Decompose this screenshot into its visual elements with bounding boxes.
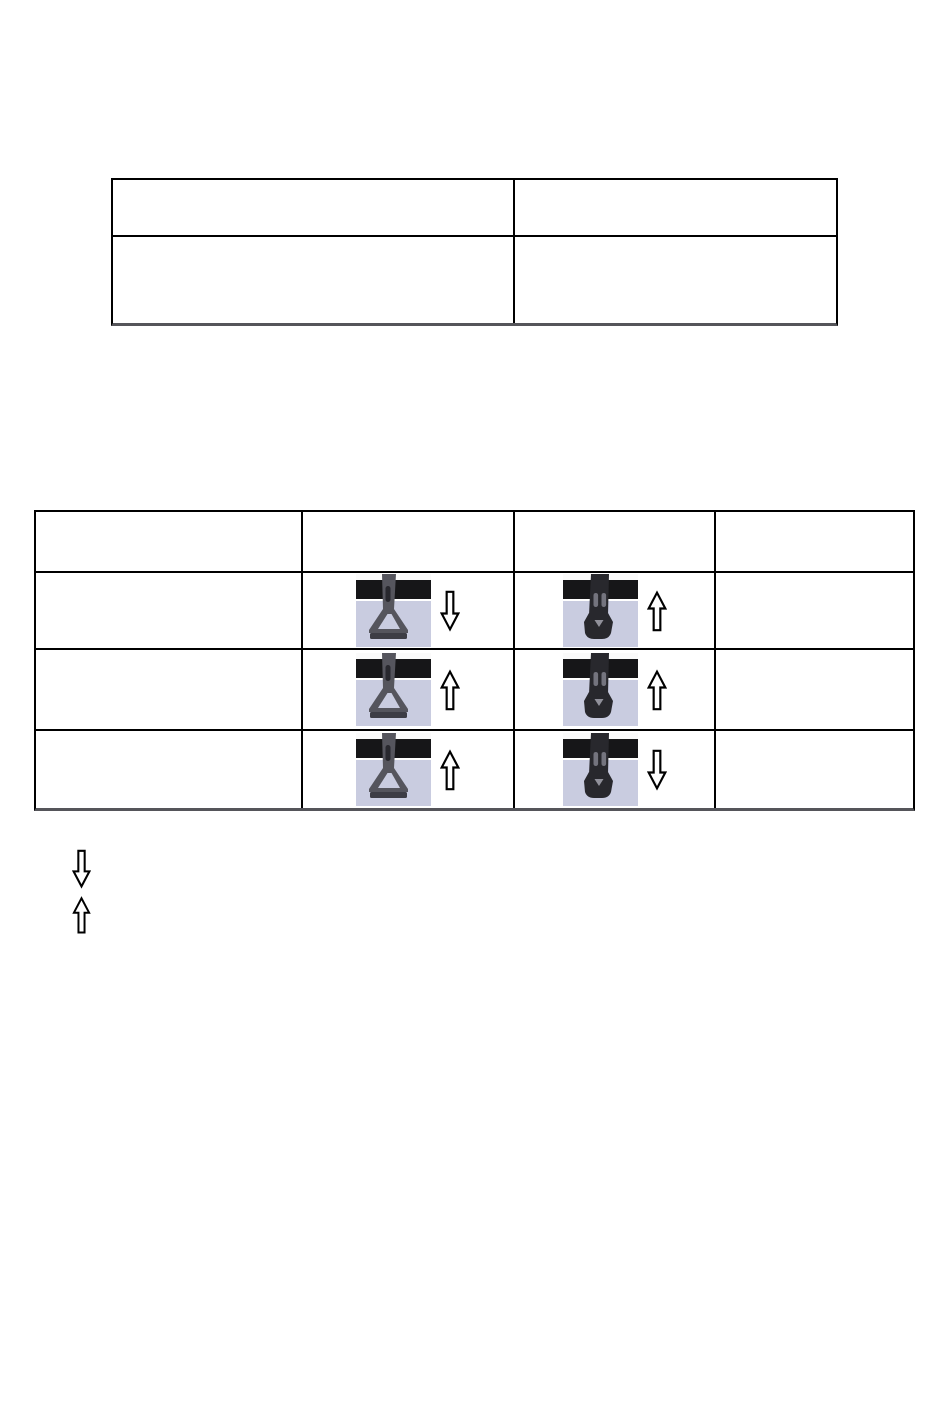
down-arrow-icon (647, 747, 667, 793)
up-arrow-icon (440, 747, 460, 793)
strap-adjustment-cell (515, 731, 716, 808)
top-table-cell (113, 237, 515, 323)
adjustment-table-cell (716, 573, 913, 650)
adjustment-table-header-cell (716, 512, 913, 573)
adjustment-table-cell (716, 731, 913, 808)
gray-triangle-buckle-icon (356, 653, 431, 726)
adjustment-table-cell (36, 731, 303, 808)
gray-triangle-buckle-icon (356, 733, 431, 806)
down-arrow-icon (440, 588, 460, 634)
strap-buckle-photo (356, 653, 431, 726)
adjustment-table-header-cell (303, 512, 515, 573)
up-arrow-icon (647, 667, 667, 713)
up-arrow-icon (647, 588, 667, 634)
strap-adjustment-cell (303, 731, 515, 808)
strap-adjustment-cell (303, 650, 515, 731)
top-table-cell (113, 180, 515, 237)
strap-buckle-photo (356, 574, 431, 647)
strap-buckle-photo (563, 653, 638, 726)
top-table-cell (515, 180, 836, 237)
dark-twin-slot-buckle-icon (563, 574, 638, 647)
gray-triangle-buckle-icon (356, 574, 431, 647)
top-table (111, 178, 838, 326)
dark-twin-slot-buckle-icon (563, 653, 638, 726)
legend-up-arrow-icon (72, 896, 91, 934)
strap-buckle-photo (563, 574, 638, 647)
adjustment-table-header-cell (36, 512, 303, 573)
strap-adjustment-cell (303, 573, 515, 650)
strap-adjustment-cell (515, 650, 716, 731)
strap-buckle-photo (563, 733, 638, 806)
adjustment-table-cell (36, 650, 303, 731)
adjustment-table-cell (716, 650, 913, 731)
top-table-cell (515, 237, 836, 323)
arrow-legend (72, 848, 91, 934)
strap-adjustment-table (34, 510, 915, 811)
dark-twin-slot-buckle-icon (563, 733, 638, 806)
strap-buckle-photo (356, 733, 431, 806)
strap-adjustment-cell (515, 573, 716, 650)
adjustment-table-header-cell (515, 512, 716, 573)
adjustment-table-cell (36, 573, 303, 650)
up-arrow-icon (440, 667, 460, 713)
legend-down-arrow-icon (72, 848, 91, 890)
document-page: { "page": { "type": "manual-document-pag… (0, 0, 950, 1401)
